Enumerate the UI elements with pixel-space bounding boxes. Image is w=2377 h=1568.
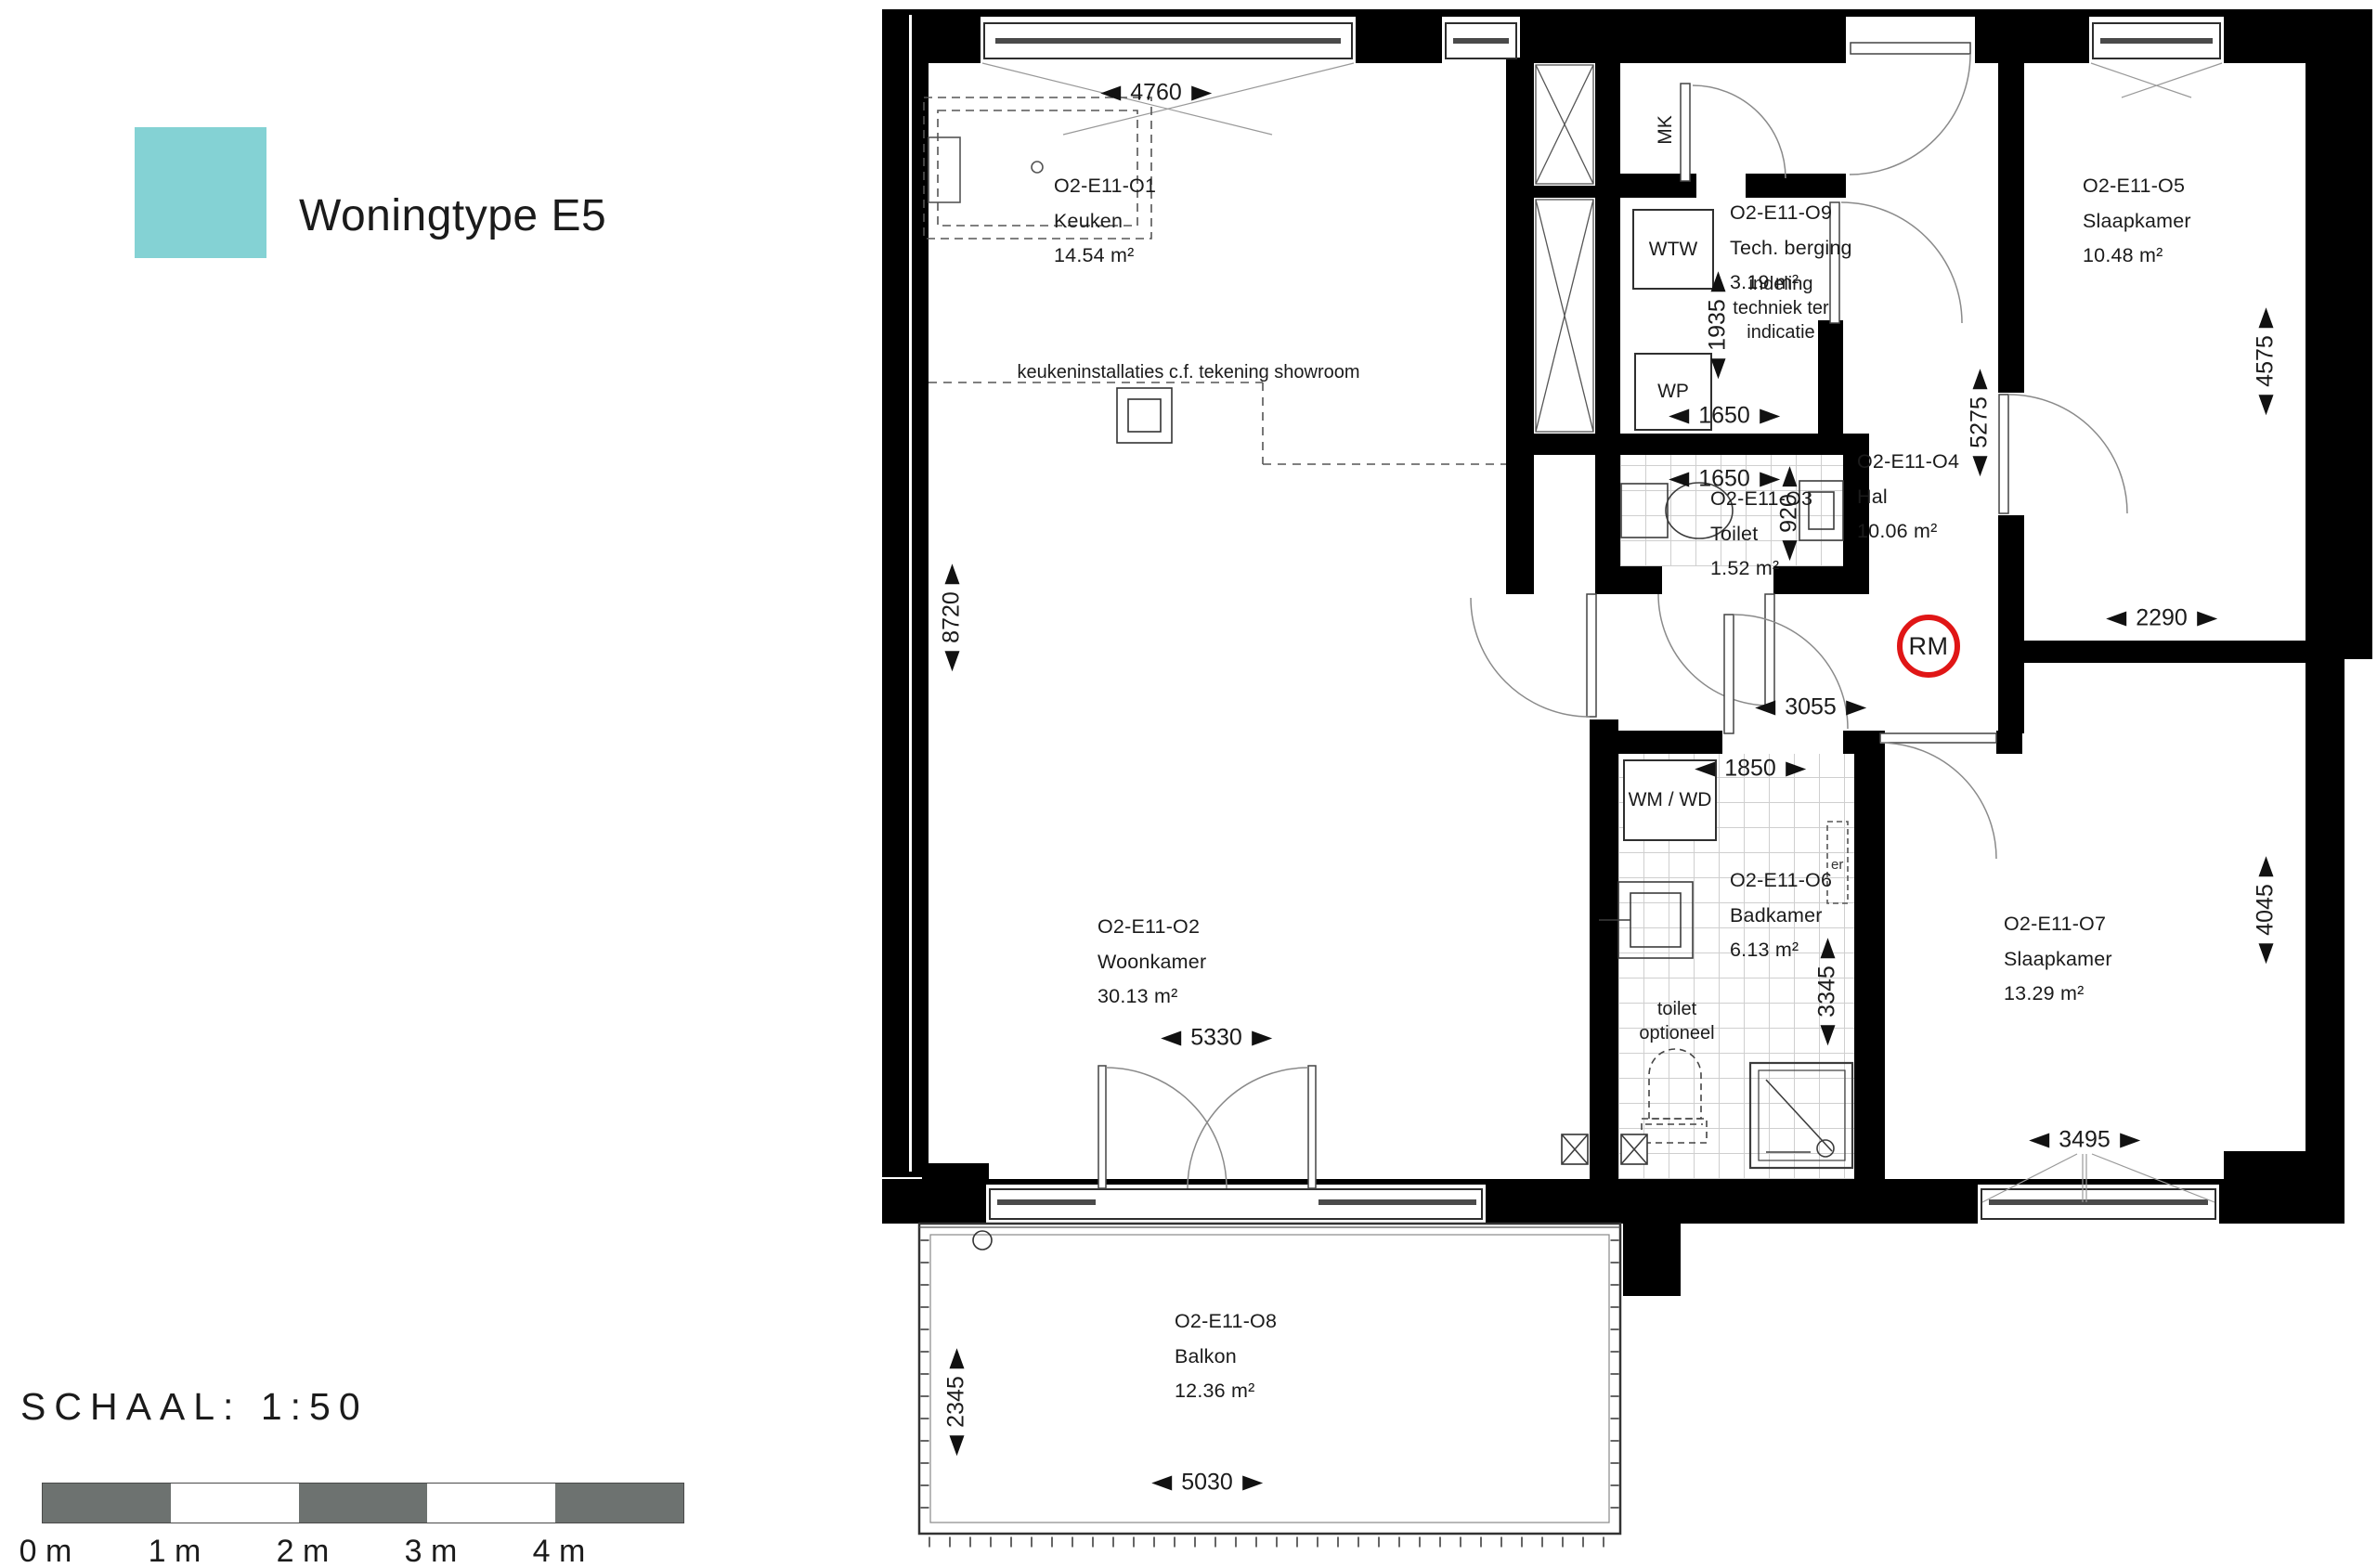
dim-value: 1650 bbox=[1698, 466, 1750, 493]
dim-arrow-down-icon bbox=[1972, 456, 1987, 476]
window-woonkamer-opening bbox=[986, 1185, 1486, 1224]
scale-segment bbox=[43, 1484, 171, 1523]
wall-right-upper bbox=[2306, 9, 2372, 659]
dim-arrow-up-icon bbox=[2258, 856, 2273, 876]
wall-badkamer-right bbox=[1854, 731, 1885, 1179]
dim-arrow-up-icon bbox=[944, 564, 959, 584]
kitchen-note: keukeninstallaties c.f. tekening showroo… bbox=[1017, 362, 1359, 383]
dim-arrow-up-icon bbox=[1782, 466, 1797, 486]
toilet-door bbox=[1658, 594, 1774, 706]
wall-shaft-right bbox=[1595, 58, 1620, 455]
room-name: Slaapkamer bbox=[2083, 212, 2191, 232]
dim-slaapkamer1-width: 2290 bbox=[2106, 605, 2217, 632]
dim-arrow-down-icon bbox=[1710, 358, 1725, 379]
room-name: Slaapkamer bbox=[2004, 950, 2112, 970]
wall-mk-right bbox=[1746, 174, 1846, 198]
wp-label: WP bbox=[1657, 381, 1689, 403]
dim-arrow-down-icon bbox=[944, 651, 959, 671]
dim-balkon-width: 5030 bbox=[1151, 1470, 1263, 1497]
wmwd-label: WM / WD bbox=[1629, 789, 1712, 811]
dim-arrow-left-icon bbox=[1669, 408, 1689, 423]
wall-shaft-divider bbox=[1534, 186, 1595, 198]
dim-woonkamer-width: 5330 bbox=[1161, 1025, 1272, 1052]
scale-segment bbox=[427, 1484, 555, 1523]
room-label-balkon: O2-E11-O8 Balkon 12.36 m² bbox=[1175, 1312, 1277, 1417]
window-slaapkamer2-opening bbox=[1978, 1185, 2219, 1224]
room-name: Hal bbox=[1857, 487, 1959, 508]
room-name: Tech. berging bbox=[1730, 239, 1852, 259]
window-slaapkamer1-opening bbox=[2089, 17, 2224, 63]
dim-arrow-down-icon bbox=[2258, 395, 2273, 415]
room-label-woonkamer: O2-E11-O2 Woonkamer 30.13 m² bbox=[1098, 917, 1206, 1022]
dim-value: 1650 bbox=[1698, 403, 1750, 430]
room-name: Badkamer bbox=[1730, 906, 1832, 927]
wall-right-lower bbox=[2306, 653, 2345, 1224]
dim-toilet-depth: 920 bbox=[1776, 466, 1803, 561]
room-code: O2-E11-O4 bbox=[1857, 452, 1959, 473]
scale-label-2m: 2 m bbox=[277, 1534, 330, 1568]
wall-mk-left bbox=[1620, 174, 1696, 198]
wall-tech-toilet bbox=[1595, 434, 1869, 455]
page-title: Woningtype E5 bbox=[299, 190, 606, 241]
tech-note-line: indeling bbox=[1725, 272, 1837, 296]
dim-value: 5275 bbox=[1967, 396, 1994, 448]
woonkamer-hal-door bbox=[1471, 594, 1596, 717]
dim-arrow-up-icon bbox=[949, 1348, 964, 1368]
dim-badkamer-width: 1850 bbox=[1695, 756, 1806, 783]
dim-value: 3345 bbox=[1814, 965, 1841, 1017]
dim-keuken-width: 4760 bbox=[1100, 80, 1212, 107]
scale-label-1m: 1 m bbox=[149, 1534, 201, 1568]
legend-color-swatch bbox=[135, 127, 266, 258]
dim-slaapkamer2-width: 3495 bbox=[2029, 1127, 2140, 1154]
room-code: O2-E11-O8 bbox=[1175, 1312, 1277, 1332]
wall-slaapkamer2-stub bbox=[1996, 731, 2022, 754]
dim-arrow-right-icon bbox=[1760, 408, 1780, 423]
scale-bar bbox=[43, 1484, 683, 1523]
dim-arrow-right-icon bbox=[1242, 1475, 1263, 1490]
wall-toilet-bottom-left bbox=[1595, 566, 1662, 594]
wall-badkamer-left bbox=[1590, 719, 1618, 1179]
dim-arrow-left-icon bbox=[1755, 700, 1775, 715]
room-code: O2-E11-O1 bbox=[1054, 176, 1156, 197]
dim-left-height: 8720 bbox=[939, 564, 966, 671]
shaft-cells bbox=[1536, 65, 1593, 432]
tech-note: indeling techniek ter indicatie bbox=[1725, 272, 1837, 344]
room-area: 12.36 m² bbox=[1175, 1381, 1277, 1402]
scale-label-3m: 3 m bbox=[405, 1534, 458, 1568]
room-area: 13.29 m² bbox=[2004, 984, 2112, 1004]
dim-arrow-right-icon bbox=[2197, 611, 2217, 626]
room-name: Woonkamer bbox=[1098, 952, 1206, 973]
entrance-door-opening bbox=[1846, 17, 1975, 63]
dim-arrow-up-icon bbox=[1710, 271, 1725, 292]
optional-toilet-line: optioneel bbox=[1634, 1021, 1720, 1045]
dim-arrow-left-icon bbox=[1100, 85, 1121, 100]
dim-value: 4045 bbox=[2253, 884, 2280, 936]
radiator-label: er bbox=[1831, 857, 1843, 873]
wall-hal-slaapkamer1-upper bbox=[1998, 58, 2024, 393]
balcony-french-doors bbox=[1098, 1066, 1316, 1188]
room-code: O2-E11-O6 bbox=[1730, 871, 1832, 891]
wtw-label: WTW bbox=[1649, 239, 1697, 261]
dim-tech-height: 1935 bbox=[1705, 271, 1732, 379]
wall-left-seam bbox=[909, 15, 912, 1172]
room-code: O2-E11-O5 bbox=[2083, 176, 2191, 197]
dim-hal-width: 3055 bbox=[1755, 694, 1866, 721]
dim-arrow-down-icon bbox=[1820, 1025, 1835, 1045]
optional-toilet-line: toilet bbox=[1634, 997, 1720, 1021]
dim-arrow-down-icon bbox=[949, 1435, 964, 1456]
room-code: O2-E11-O9 bbox=[1730, 203, 1852, 224]
dim-arrow-left-icon bbox=[1151, 1475, 1172, 1490]
slaapkamer2-door bbox=[1880, 733, 1996, 859]
scale-label-0m: 0 m bbox=[19, 1534, 72, 1568]
dim-toilet-width: 1650 bbox=[1669, 466, 1780, 493]
dim-arrow-left-icon bbox=[1695, 761, 1715, 776]
scale-segment bbox=[299, 1484, 427, 1523]
dim-value: 2345 bbox=[943, 1376, 970, 1428]
mk-label: MK bbox=[1655, 115, 1677, 145]
wall-slaapkamer1-bottom bbox=[1998, 641, 2306, 663]
rm-label: RM bbox=[1909, 632, 1949, 661]
scale-segment bbox=[171, 1484, 299, 1523]
wall-badkamer-top-left bbox=[1618, 731, 1722, 754]
dim-arrow-down-icon bbox=[1782, 540, 1797, 561]
kitchen-counter bbox=[924, 97, 1506, 464]
room-name: Keuken bbox=[1054, 212, 1156, 232]
dim-arrow-right-icon bbox=[2120, 1133, 2140, 1147]
dim-value: 8720 bbox=[939, 591, 966, 643]
tech-note-line: techniek ter bbox=[1725, 296, 1837, 320]
mk-door bbox=[1681, 84, 1786, 181]
dim-hal-height: 5275 bbox=[1967, 369, 1994, 476]
dim-value: 1850 bbox=[1724, 756, 1776, 783]
room-name: Balkon bbox=[1175, 1347, 1277, 1367]
dim-arrow-left-icon bbox=[2106, 611, 2126, 626]
dim-arrow-left-icon bbox=[1669, 472, 1689, 486]
dim-value: 2290 bbox=[2136, 605, 2188, 632]
dim-balkon-depth: 2345 bbox=[943, 1348, 970, 1456]
tech-note-line: indicatie bbox=[1725, 320, 1837, 344]
dim-slaapkamer2-height: 4045 bbox=[2253, 856, 2280, 964]
slaapkamer1-door bbox=[1999, 395, 2127, 513]
room-code: O2-E11-O2 bbox=[1098, 917, 1206, 938]
room-code: O2-E11-O7 bbox=[2004, 914, 2112, 935]
scale-title: SCHAAL: 1:50 bbox=[20, 1385, 369, 1429]
wall-left bbox=[882, 9, 929, 1177]
wall-keuken-right bbox=[1506, 58, 1534, 594]
dim-arrow-right-icon bbox=[1191, 85, 1212, 100]
dim-slaapkamer1-height: 4575 bbox=[2253, 307, 2280, 415]
window-small-opening bbox=[1442, 17, 1520, 63]
scale-segment bbox=[555, 1484, 683, 1523]
room-area: 14.54 m² bbox=[1054, 246, 1156, 266]
dim-arrow-down-icon bbox=[2258, 943, 2273, 964]
dim-arrow-up-icon bbox=[2258, 307, 2273, 328]
dim-value: 5030 bbox=[1181, 1470, 1233, 1497]
room-area: 10.48 m² bbox=[2083, 246, 2191, 266]
optional-toilet-note: toilet optioneel bbox=[1634, 997, 1720, 1045]
dim-arrow-up-icon bbox=[1972, 369, 1987, 389]
dim-value: 1935 bbox=[1705, 299, 1732, 351]
dim-tech-width: 1650 bbox=[1669, 403, 1780, 430]
dim-value: 4575 bbox=[2253, 335, 2280, 387]
dim-badkamer-height: 3345 bbox=[1814, 938, 1841, 1045]
room-label-slaapkamer1: O2-E11-O5 Slaapkamer 10.48 m² bbox=[2083, 176, 2191, 281]
dim-arrow-up-icon bbox=[1820, 938, 1835, 958]
dim-value: 3055 bbox=[1785, 694, 1837, 721]
room-area: 30.13 m² bbox=[1098, 987, 1206, 1007]
room-area: 10.06 m² bbox=[1857, 522, 1959, 542]
room-label-hal: O2-E11-O4 Hal 10.06 m² bbox=[1857, 452, 1959, 557]
dim-arrow-left-icon bbox=[2029, 1133, 2049, 1147]
room-label-keuken: O2-E11-O1 Keuken 14.54 m² bbox=[1054, 176, 1156, 281]
wall-hal-slaapkamer1-lower bbox=[1998, 515, 2024, 733]
room-label-slaapkamer2: O2-E11-O7 Slaapkamer 13.29 m² bbox=[2004, 914, 2112, 1019]
wtw-unit: WTW bbox=[1632, 209, 1714, 290]
dim-arrow-right-icon bbox=[1252, 1030, 1272, 1045]
floorplan-page: Woningtype E5 bbox=[0, 0, 2377, 1568]
dim-value: 920 bbox=[1776, 494, 1803, 533]
wall-pier-balcony-right bbox=[1623, 1224, 1681, 1296]
rm-badge: RM bbox=[1897, 615, 1960, 678]
dim-value: 5330 bbox=[1190, 1025, 1242, 1052]
room-area: 1.52 m² bbox=[1710, 559, 1812, 579]
dim-arrow-right-icon bbox=[1846, 700, 1866, 715]
dim-arrow-left-icon bbox=[1161, 1030, 1181, 1045]
dim-arrow-right-icon bbox=[1786, 761, 1806, 776]
scale-label-4m: 4 m bbox=[533, 1534, 586, 1568]
window-keuken-opening bbox=[981, 17, 1356, 63]
dim-value: 4760 bbox=[1130, 80, 1182, 107]
dim-value: 3495 bbox=[2059, 1127, 2111, 1154]
